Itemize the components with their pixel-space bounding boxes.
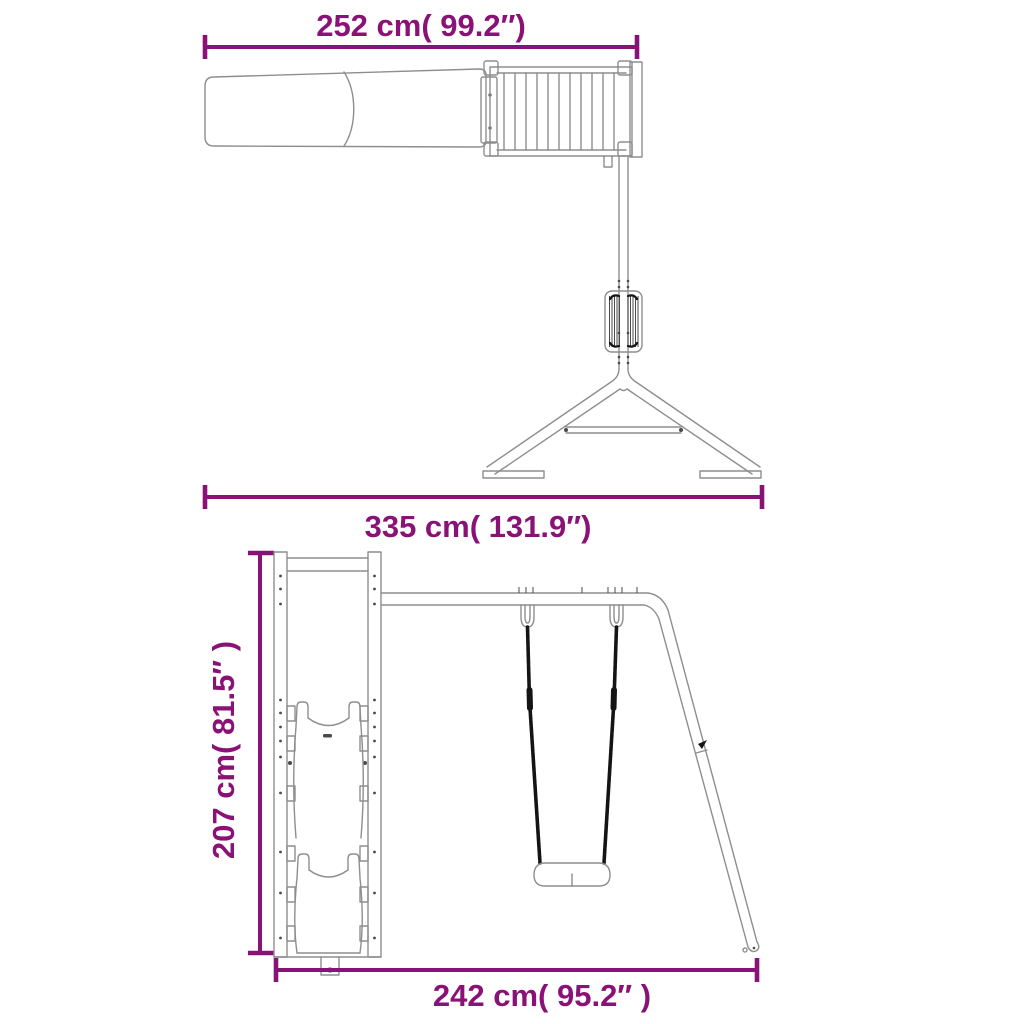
swing-beam-front [381, 587, 668, 627]
front-view-drawing [248, 552, 759, 982]
swing-front [528, 627, 617, 886]
platform-plan [484, 61, 642, 167]
dimension-label-height: 207 cm( 81.5″ ) [206, 641, 242, 859]
tower-front [274, 552, 381, 975]
top-view-drawing [205, 35, 762, 509]
dimension-line-height [248, 553, 274, 953]
a-frame-plan [483, 369, 761, 478]
dimension-drawing: 252 cm( 99.2″) 335 cm( 131.9″) 207 cm( 8… [0, 0, 1024, 1024]
slide-front [294, 702, 364, 953]
slide-plan [205, 69, 497, 147]
dimension-label-base-width: 242 cm( 95.2″ ) [433, 978, 651, 1014]
dimension-line-total-width [205, 485, 762, 509]
support-leg-front [659, 610, 759, 952]
dimension-label-top-width: 252 cm( 99.2″) [316, 8, 526, 44]
dimension-label-total-width: 335 cm( 131.9″) [365, 509, 592, 545]
swing-seat-plan [605, 291, 642, 352]
